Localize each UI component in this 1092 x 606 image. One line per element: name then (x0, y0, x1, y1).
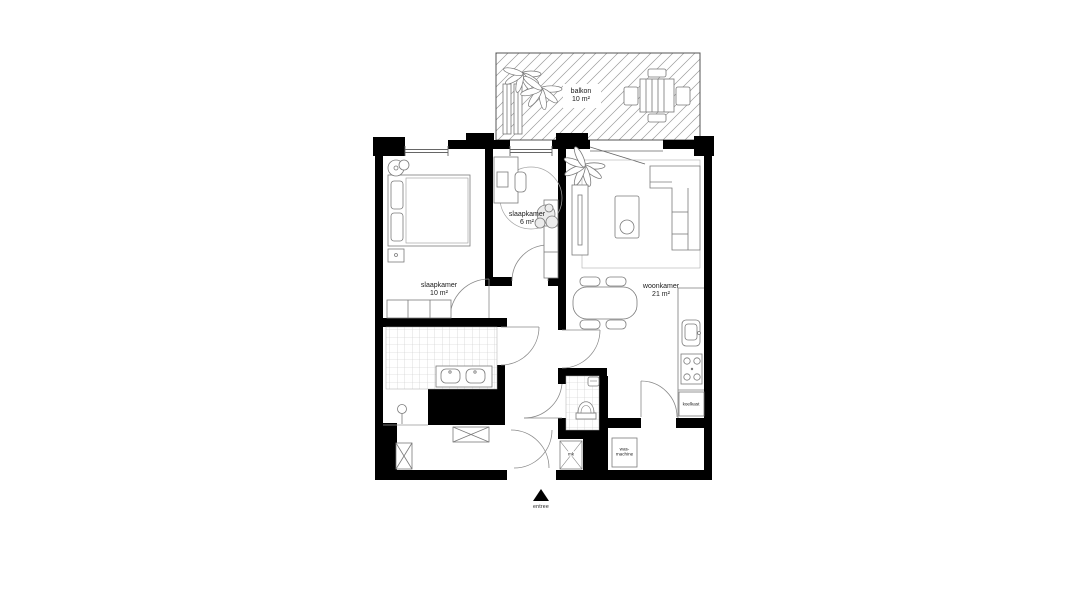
meter-cupboard-label: mk (567, 451, 575, 456)
balcony-label: balkon 10 m² (571, 88, 592, 105)
bedroom-large-name: slaapkamer (421, 282, 457, 290)
kitchen-sink (682, 320, 701, 346)
shower-head-icon (398, 405, 407, 425)
balcony (496, 53, 700, 140)
floorplan-canvas: balkon 10 m² slaapkamer 6 m² slaapkamer … (0, 0, 1092, 606)
sofa (650, 166, 700, 250)
floorplan-drawing (0, 0, 1092, 606)
living-room-name: woonkamer (643, 283, 679, 291)
tv-cabinet (572, 185, 588, 255)
living-room-label: woonkamer 21 m² (643, 283, 679, 300)
vanity-double-sink (436, 366, 492, 387)
stove (681, 354, 702, 384)
balcony-area: 10 m² (571, 96, 592, 104)
washing-machine-label: was- machine (616, 447, 633, 458)
coffee-table (615, 196, 639, 238)
dining-table (573, 277, 637, 329)
closet-x-vertical (396, 443, 412, 469)
balcony-door (590, 147, 663, 164)
bedroom-large-area: 10 m² (421, 290, 457, 298)
desk (494, 157, 518, 203)
bedroom-small-name: slaapkamer (509, 211, 545, 219)
balcony-name: balkon (571, 88, 592, 96)
wc (566, 376, 599, 430)
entrance-label: entree (533, 504, 549, 510)
bedroom-small-label: slaapkamer 6 m² (509, 211, 545, 228)
bed (388, 175, 470, 246)
kitchen (678, 288, 704, 418)
nightstand (388, 249, 404, 262)
closet-x-horizontal (453, 427, 489, 442)
fridge-label: koelkast (683, 401, 700, 406)
wc-sink (588, 377, 599, 386)
ceiling-lamp-icon (388, 160, 409, 176)
washing-machine-line2: machine (616, 452, 633, 457)
dresser (387, 300, 451, 318)
bedroom-large-label: slaapkamer 10 m² (421, 282, 457, 299)
bedroom-small-area: 6 m² (509, 219, 545, 227)
desk-chair (515, 172, 526, 192)
living-room-area: 21 m² (643, 291, 679, 299)
living-room-furniture (563, 146, 700, 329)
entrance-arrow-icon (533, 489, 549, 501)
plant-icon (563, 146, 605, 187)
